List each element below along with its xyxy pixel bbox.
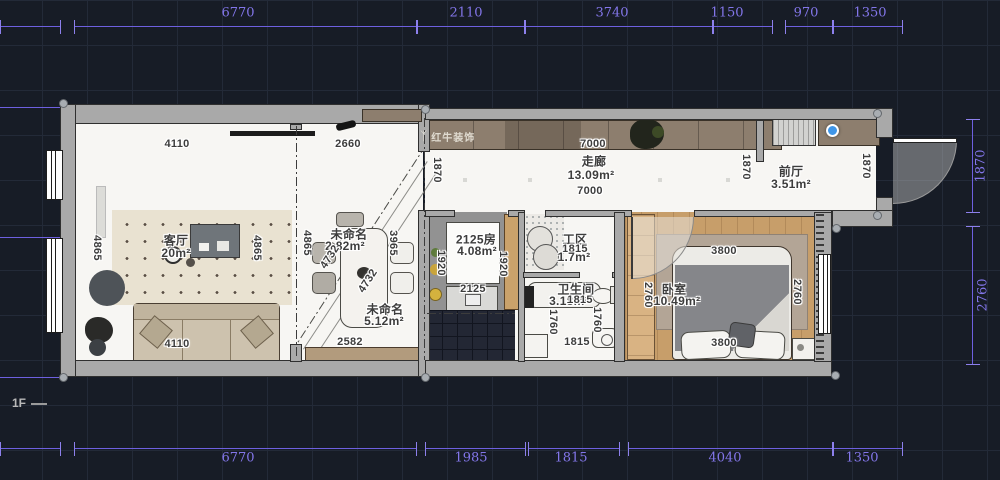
grip-dot[interactable] bbox=[421, 105, 430, 114]
dim-text: 1760 bbox=[547, 309, 559, 335]
dryer[interactable] bbox=[533, 244, 559, 270]
kitchen-dark-tiles[interactable] bbox=[427, 310, 515, 362]
floor-level-label[interactable]: 1F bbox=[12, 396, 47, 410]
selection-grip[interactable] bbox=[826, 124, 839, 137]
dimension-line[interactable] bbox=[525, 26, 713, 27]
dim-text: 1870 bbox=[431, 157, 443, 183]
brand-watermark: ᛉ红牛装饰 bbox=[420, 123, 494, 149]
room-area: 1.7m² bbox=[558, 250, 591, 264]
curtain[interactable] bbox=[96, 186, 106, 238]
grip-dot[interactable] bbox=[421, 373, 430, 382]
grip-dot[interactable] bbox=[59, 99, 68, 108]
room-name: 走廊 bbox=[582, 153, 607, 170]
extension-line bbox=[0, 377, 62, 378]
dimension-line[interactable] bbox=[74, 26, 417, 27]
floor-level-dash bbox=[31, 403, 47, 405]
tv[interactable] bbox=[230, 131, 315, 136]
cad-floorplan-viewport[interactable]: 6770 2110 3740 1150 970 1350 6770 1985 1… bbox=[0, 0, 1000, 480]
wall bbox=[60, 360, 425, 377]
bath-fixture bbox=[524, 286, 534, 308]
dim-text: 7000 bbox=[580, 138, 606, 150]
dim-text: 2125 bbox=[460, 283, 486, 295]
dim-text: 2760 bbox=[642, 282, 654, 308]
spotlight bbox=[658, 178, 662, 182]
sofa-seam bbox=[230, 320, 231, 360]
dining-chair[interactable] bbox=[312, 272, 336, 294]
sink-basin bbox=[601, 334, 613, 346]
dim-text: 1920 bbox=[435, 250, 447, 276]
floor-lamp[interactable] bbox=[89, 270, 125, 306]
wall bbox=[614, 212, 625, 362]
room-area: 20m² bbox=[161, 246, 190, 260]
dim-label: 1350 bbox=[853, 6, 886, 21]
bathroom-counter[interactable] bbox=[522, 334, 548, 358]
lamp bbox=[797, 344, 804, 351]
dimension-line[interactable] bbox=[0, 448, 61, 449]
wall bbox=[523, 272, 580, 278]
dim-label: 1985 bbox=[454, 451, 487, 466]
dim-text: 4865 bbox=[91, 235, 103, 261]
extension-line bbox=[0, 107, 60, 108]
entry-door-swing bbox=[893, 140, 957, 204]
section-line bbox=[427, 313, 515, 314]
wall-cabinet[interactable] bbox=[362, 109, 422, 122]
section-line bbox=[424, 118, 425, 360]
dim-text: 1920 bbox=[497, 251, 509, 277]
room-area: 10.49m² bbox=[654, 294, 701, 308]
dimension-line[interactable] bbox=[833, 448, 903, 449]
grip-dot[interactable] bbox=[831, 371, 840, 380]
entry-door-leaf[interactable] bbox=[893, 138, 957, 143]
spotlight bbox=[726, 178, 730, 182]
dim-text: 4865 bbox=[251, 235, 263, 261]
wall bbox=[518, 212, 525, 362]
dim-label: 1150 bbox=[710, 6, 743, 21]
tray bbox=[217, 241, 229, 251]
corridor-plant-leaf bbox=[652, 126, 664, 138]
dim-label: 1815 bbox=[554, 451, 587, 466]
shoe-cabinet[interactable] bbox=[772, 118, 816, 146]
dimension-line[interactable] bbox=[713, 26, 773, 27]
dim-text: 1870 bbox=[860, 153, 872, 179]
sliding-partition-line bbox=[296, 126, 297, 358]
dim-label: 2760 bbox=[976, 278, 991, 311]
grip-dot[interactable] bbox=[873, 211, 882, 220]
wall-stub bbox=[756, 120, 764, 162]
window[interactable] bbox=[46, 238, 63, 333]
dim-text: 2760 bbox=[791, 279, 803, 305]
dim-text: 4110 bbox=[164, 338, 189, 350]
window[interactable] bbox=[46, 150, 63, 200]
window[interactable] bbox=[818, 254, 831, 334]
wall bbox=[694, 210, 832, 217]
dimension-line[interactable] bbox=[833, 26, 903, 27]
spotlight bbox=[528, 178, 532, 182]
dining-chair[interactable] bbox=[390, 272, 414, 294]
dim-text: 1815 bbox=[567, 294, 593, 306]
nightstand[interactable] bbox=[792, 338, 816, 360]
dimension-line[interactable] bbox=[972, 226, 973, 365]
dim-label: 4040 bbox=[708, 451, 741, 466]
dim-text: 2660 bbox=[335, 138, 361, 150]
grip-dot[interactable] bbox=[832, 224, 841, 233]
dim-label: 1350 bbox=[845, 451, 878, 466]
dim-label: 2110 bbox=[449, 6, 482, 21]
stool[interactable] bbox=[89, 339, 106, 356]
dimension-line[interactable] bbox=[0, 26, 61, 27]
extension-line bbox=[0, 237, 60, 238]
dimension-line[interactable] bbox=[785, 26, 833, 27]
dim-text: 1815 bbox=[564, 336, 590, 348]
dim-text: 2582 bbox=[337, 336, 363, 348]
dim-text: 7000 bbox=[577, 185, 603, 197]
dim-label: 6770 bbox=[221, 451, 254, 466]
dimension-line[interactable] bbox=[628, 448, 833, 449]
dim-label: 3740 bbox=[595, 6, 628, 21]
dimension-line[interactable] bbox=[528, 448, 620, 449]
room-area: 5.12m² bbox=[364, 314, 404, 328]
wall bbox=[425, 210, 455, 217]
wall bbox=[425, 360, 832, 377]
dim-text: 1760 bbox=[591, 307, 603, 333]
grip-dot[interactable] bbox=[59, 373, 68, 382]
dimension-line[interactable] bbox=[417, 26, 525, 27]
spotlight bbox=[463, 178, 467, 182]
dim-text: 3800 bbox=[711, 337, 737, 349]
room-area: 13.09m² bbox=[568, 168, 615, 182]
room-area: 3.51m² bbox=[771, 177, 811, 191]
dimension-line[interactable] bbox=[425, 448, 526, 449]
dim-text: 3800 bbox=[711, 245, 737, 257]
brand-name: 红牛装饰 bbox=[431, 129, 475, 144]
room-area: 4.08m² bbox=[457, 244, 497, 258]
dim-label: 6770 bbox=[221, 6, 254, 21]
dim-text: 4865 bbox=[301, 230, 313, 256]
cabinet-dark-section bbox=[505, 121, 581, 149]
dim-label: 1870 bbox=[974, 149, 989, 182]
coffee-table[interactable] bbox=[190, 224, 240, 258]
bedroom-door-leaf[interactable] bbox=[631, 217, 633, 279]
dim-text: 3965 bbox=[387, 230, 399, 256]
wall bbox=[832, 210, 893, 227]
tray bbox=[199, 243, 209, 251]
flower-pot bbox=[429, 288, 442, 301]
wall bbox=[425, 108, 893, 120]
dim-text: 4110 bbox=[164, 138, 189, 150]
dim-text: 1870 bbox=[740, 154, 752, 180]
sink bbox=[465, 294, 481, 306]
sofa[interactable] bbox=[133, 303, 280, 365]
dim-label: 970 bbox=[794, 6, 819, 21]
grip-dot[interactable] bbox=[873, 109, 882, 118]
dimension-line[interactable] bbox=[74, 448, 417, 449]
sofa-pillow bbox=[240, 315, 274, 349]
